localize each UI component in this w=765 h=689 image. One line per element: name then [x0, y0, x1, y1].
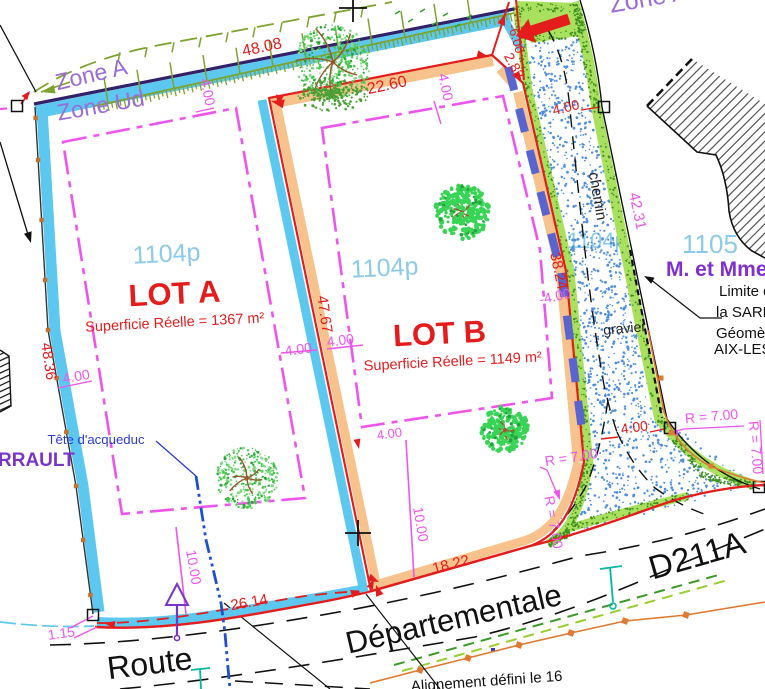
svg-text:Géomèt: Géomèt: [716, 325, 765, 342]
svg-text:RRAULT: RRAULT: [0, 450, 75, 471]
svg-text:Tête d'acqueduc: Tête d'acqueduc: [47, 432, 145, 447]
svg-text:la SARL: la SARL: [716, 304, 765, 321]
svg-text:LOT B: LOT B: [392, 314, 487, 354]
svg-text:1104p: 1104p: [132, 238, 201, 270]
svg-text:1104p: 1104p: [350, 252, 419, 284]
svg-text:1105: 1105: [682, 229, 738, 259]
svg-text:AIX-LES: AIX-LES: [714, 341, 765, 358]
svg-text:Limite d: Limite d: [719, 283, 765, 300]
svg-text:M. et Mme: M. et Mme: [666, 258, 765, 281]
svg-text:LOT A: LOT A: [128, 274, 222, 314]
